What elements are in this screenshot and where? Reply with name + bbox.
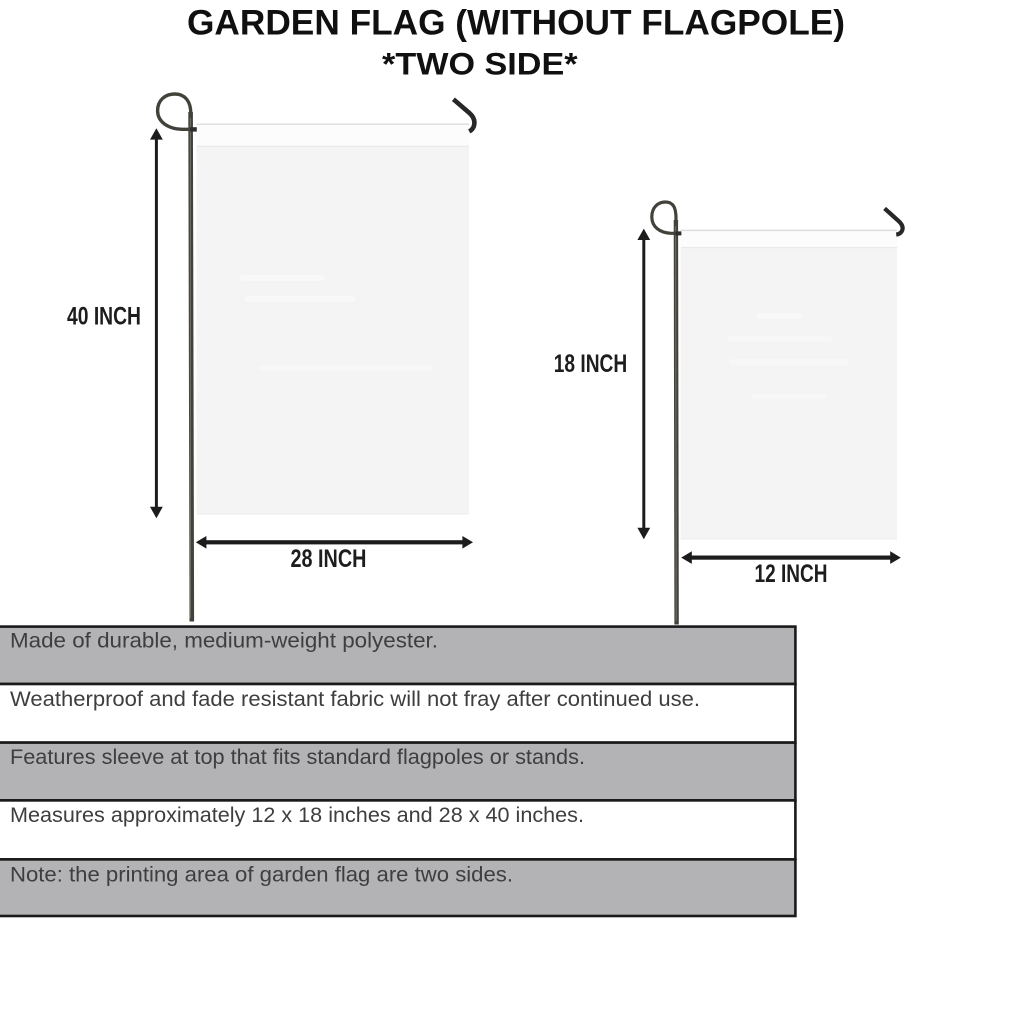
svg-text:12 INCH: 12 INCH [755,560,828,588]
svg-text:18 INCH: 18 INCH [554,350,628,378]
svg-text:*TWO SIDE*: *TWO SIDE* [382,46,578,82]
svg-text:Weatherproof and fade resistan: Weatherproof and fade resistant fabric w… [10,688,700,711]
svg-text:Made of durable, medium-weight: Made of durable, medium-weight polyester… [10,630,438,653]
svg-text:28 INCH: 28 INCH [291,545,367,573]
svg-text:GARDEN FLAG (WITHOUT FLAGPOLE): GARDEN FLAG (WITHOUT FLAGPOLE) [187,4,845,43]
svg-text:Measures approximately 12 x 18: Measures approximately 12 x 18 inches an… [10,804,584,827]
svg-text:Note: the printing area of gar: Note: the printing area of garden flag a… [10,864,513,887]
svg-text:40 INCH: 40 INCH [67,302,141,330]
svg-text:Features sleeve at top that fi: Features sleeve at top that fits standar… [10,746,585,769]
